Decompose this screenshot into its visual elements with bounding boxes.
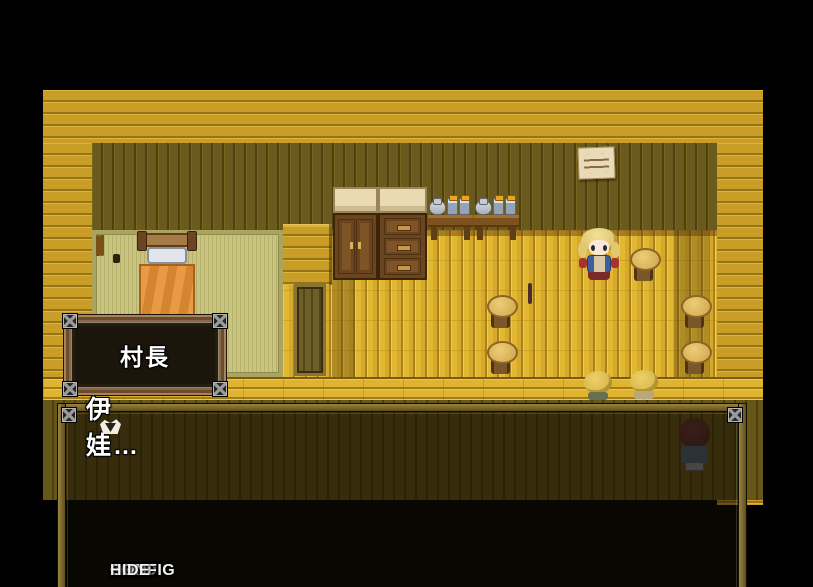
character-hair xyxy=(630,370,658,392)
menu-item-hide[interactable]: HIDE xyxy=(110,562,150,580)
potion-shelf xyxy=(428,193,473,243)
stool xyxy=(630,248,657,281)
bed-pillow xyxy=(147,247,187,264)
frame-ornament-icon xyxy=(63,314,77,328)
wall-note xyxy=(577,146,615,179)
dialogue-frame-top xyxy=(58,404,746,411)
stool xyxy=(487,341,514,374)
potion-jar-icon xyxy=(447,198,458,215)
name-box: 村長 xyxy=(63,314,227,396)
drawer xyxy=(384,258,421,275)
cabinet-door-right xyxy=(356,219,373,274)
shelf-bracket xyxy=(464,227,470,240)
dialogue-window[interactable]: 伊娃… AUTO FAST LOG LOAD CONFIG HIDE xyxy=(58,404,746,587)
teapot-icon xyxy=(428,196,445,215)
frame-ornament-icon xyxy=(728,408,742,422)
frame-ornament-icon xyxy=(213,314,227,328)
speaker-name: 村長 xyxy=(120,338,170,372)
cabinet-top xyxy=(333,187,378,213)
shelf-bracket xyxy=(477,227,483,240)
treasure-chest xyxy=(96,237,137,277)
cabinet-body xyxy=(333,213,378,280)
drawer-chest-body xyxy=(378,213,427,280)
character-sitting-blonde xyxy=(629,370,659,400)
divider-wall xyxy=(283,224,332,285)
drawer xyxy=(384,218,421,235)
character-sitting-blonde xyxy=(583,371,613,401)
character-hair-curl xyxy=(611,242,620,258)
character-body xyxy=(587,255,611,273)
character-eye xyxy=(591,245,595,251)
drawer-chest xyxy=(378,187,427,280)
dining-table xyxy=(528,285,668,377)
potion-jar-icon xyxy=(505,198,516,215)
stool xyxy=(681,295,708,328)
stool xyxy=(681,341,708,374)
drawer xyxy=(384,238,421,255)
character-body xyxy=(588,392,608,400)
frame-ornament-icon xyxy=(213,382,227,396)
character-hair xyxy=(584,371,612,393)
cabinet-door-left xyxy=(338,219,355,274)
shelf-board xyxy=(474,215,519,227)
character-hair-curl xyxy=(578,242,587,258)
character-body xyxy=(634,391,654,399)
frame-ornament-icon xyxy=(62,408,76,422)
name-box-inner: 村長 xyxy=(71,322,219,388)
game-screen: 村長 伊娃… AUTO FAST LOG LOAD CONFIG HIDE xyxy=(0,0,813,587)
character-skirt xyxy=(588,272,610,280)
dialogue-frame-left xyxy=(58,404,65,587)
potion-jar-icon xyxy=(493,198,504,215)
cabinet xyxy=(333,187,378,280)
shelf-bracket xyxy=(510,227,516,240)
dialogue-frame-right xyxy=(739,404,746,587)
stool xyxy=(487,295,514,328)
door xyxy=(294,284,326,376)
drawer-chest-top xyxy=(378,187,427,213)
potion-shelf xyxy=(474,193,519,243)
potion-jar-icon xyxy=(459,198,470,215)
shelf-bracket xyxy=(431,227,437,240)
message-menu-bar: AUTO FAST LOG LOAD CONFIG HIDE xyxy=(110,558,698,584)
shelf-board xyxy=(428,215,473,227)
character-standing-blonde xyxy=(579,228,619,280)
bed-headboard xyxy=(137,233,197,247)
chest-keyhole xyxy=(113,254,120,263)
teapot-icon xyxy=(474,196,491,215)
character-eye xyxy=(603,245,607,251)
frame-ornament-icon xyxy=(63,382,77,396)
outer-wall-top xyxy=(43,90,763,143)
